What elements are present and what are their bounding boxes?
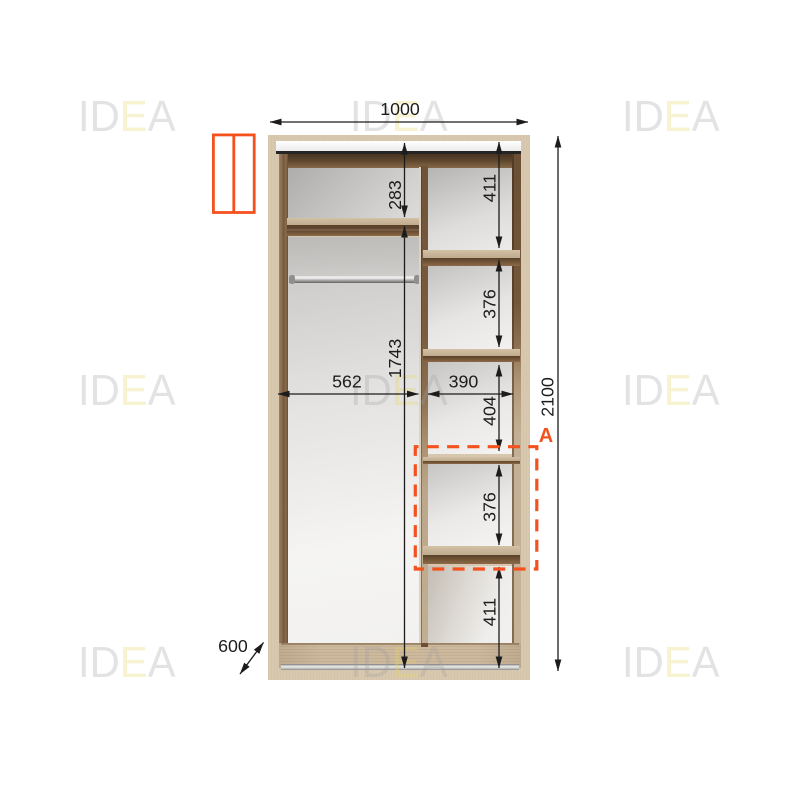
svg-text:411: 411 bbox=[480, 174, 500, 202]
svg-text:600: 600 bbox=[218, 636, 248, 656]
svg-text:1743: 1743 bbox=[385, 339, 405, 379]
svg-text:376: 376 bbox=[480, 492, 500, 522]
svg-text:A: A bbox=[539, 425, 553, 447]
svg-text:411: 411 bbox=[480, 598, 500, 626]
svg-text:376: 376 bbox=[480, 289, 500, 319]
svg-text:404: 404 bbox=[480, 396, 500, 426]
svg-text:562: 562 bbox=[332, 372, 362, 392]
svg-text:390: 390 bbox=[449, 372, 479, 392]
svg-text:2100: 2100 bbox=[538, 377, 558, 417]
svg-text:283: 283 bbox=[385, 180, 405, 210]
svg-text:1000: 1000 bbox=[380, 99, 420, 119]
